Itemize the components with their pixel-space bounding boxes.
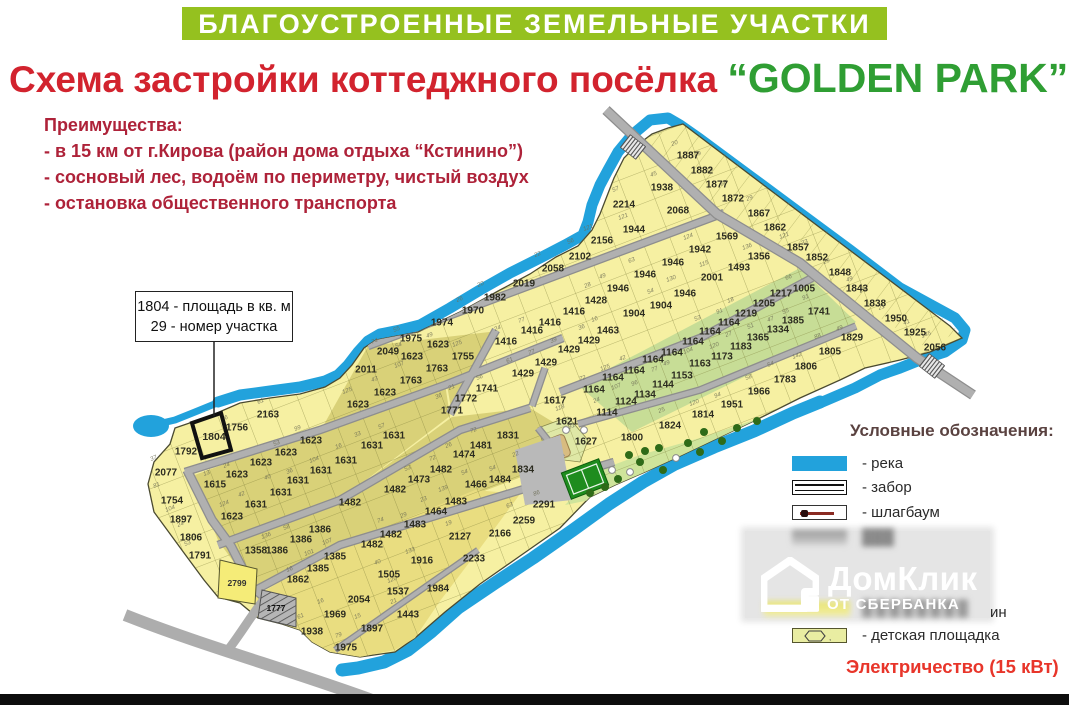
svg-text:1946: 1946 (662, 258, 685, 269)
svg-text:2166: 2166 (489, 529, 512, 540)
svg-text:1631: 1631 (287, 476, 310, 487)
svg-text:1416: 1416 (563, 307, 586, 318)
svg-text:1772: 1772 (455, 394, 478, 405)
svg-text:1834: 1834 (512, 465, 535, 476)
svg-text:1897: 1897 (170, 515, 193, 526)
svg-text:2019: 2019 (513, 279, 536, 290)
svg-text:1482: 1482 (384, 485, 407, 496)
svg-text:1164: 1164 (583, 385, 605, 396)
svg-text:1164: 1164 (623, 366, 645, 377)
svg-text:1173: 1173 (711, 352, 733, 363)
svg-text:1164: 1164 (661, 348, 683, 359)
svg-text:1623: 1623 (347, 400, 370, 411)
svg-text:1463: 1463 (597, 326, 620, 337)
svg-text:2054: 2054 (348, 595, 371, 606)
svg-text:1897: 1897 (361, 624, 384, 635)
svg-text:,: , (829, 633, 831, 642)
svg-text:1484: 1484 (489, 475, 512, 486)
svg-text:2156: 2156 (591, 236, 614, 247)
svg-text:1838: 1838 (864, 299, 887, 310)
svg-text:1984: 1984 (427, 584, 450, 595)
svg-text:1944: 1944 (623, 225, 646, 236)
svg-text:1916: 1916 (411, 556, 434, 567)
svg-text:1783: 1783 (774, 375, 797, 386)
svg-text:1852: 1852 (806, 253, 829, 264)
svg-text:1829: 1829 (841, 333, 864, 344)
svg-text:1621: 1621 (556, 417, 579, 428)
svg-text:1623: 1623 (401, 352, 424, 363)
svg-text:1950: 1950 (885, 314, 908, 325)
svg-text:1124: 1124 (615, 397, 637, 408)
svg-text:1877: 1877 (706, 180, 729, 191)
svg-text:1741: 1741 (808, 307, 831, 318)
svg-text:1163: 1163 (689, 359, 711, 370)
svg-text:1627: 1627 (575, 437, 598, 448)
svg-text:1164: 1164 (602, 373, 624, 384)
svg-text:1537: 1537 (387, 587, 410, 598)
svg-text:1631: 1631 (335, 456, 358, 467)
svg-text:1623: 1623 (427, 340, 450, 351)
svg-text:1631: 1631 (245, 500, 268, 511)
svg-text:1755: 1755 (452, 352, 475, 363)
svg-text:1777: 1777 (267, 603, 286, 613)
svg-text:1429: 1429 (578, 336, 601, 347)
svg-text:1763: 1763 (400, 376, 423, 387)
svg-text:1482: 1482 (361, 540, 384, 551)
svg-text:2068: 2068 (667, 206, 690, 217)
svg-text:1975: 1975 (335, 643, 358, 654)
svg-text:1385: 1385 (307, 564, 330, 575)
svg-text:1631: 1631 (383, 431, 406, 442)
svg-text:1806: 1806 (795, 362, 818, 373)
svg-text:1925: 1925 (904, 328, 927, 339)
svg-text:1493: 1493 (728, 263, 751, 274)
svg-text:1951: 1951 (721, 400, 744, 411)
svg-text:2799: 2799 (228, 578, 247, 588)
svg-text:1005: 1005 (793, 284, 816, 295)
svg-text:2049: 2049 (377, 347, 400, 358)
svg-text:1763: 1763 (426, 364, 449, 375)
svg-text:1631: 1631 (361, 441, 384, 452)
svg-text:1358: 1358 (245, 546, 268, 557)
svg-text:1334: 1334 (767, 325, 790, 336)
svg-text:1970: 1970 (462, 306, 485, 317)
svg-text:1569: 1569 (716, 232, 739, 243)
svg-text:1617: 1617 (544, 396, 567, 407)
svg-text:1483: 1483 (404, 520, 427, 531)
svg-text:1386: 1386 (309, 525, 332, 536)
svg-text:1164: 1164 (642, 355, 664, 366)
svg-text:1741: 1741 (476, 384, 499, 395)
svg-text:1814: 1814 (692, 410, 715, 421)
svg-text:1946: 1946 (634, 270, 657, 281)
svg-text:1464: 1464 (425, 507, 448, 518)
svg-text:1904: 1904 (623, 309, 646, 320)
svg-text:2001: 2001 (701, 273, 724, 284)
svg-text:1966: 1966 (748, 387, 771, 398)
svg-text:1623: 1623 (275, 448, 298, 459)
svg-text:2056: 2056 (924, 343, 947, 354)
svg-text:1134: 1134 (634, 390, 656, 401)
svg-text:2291: 2291 (533, 500, 556, 511)
svg-text:1482: 1482 (339, 498, 362, 509)
svg-text:2011: 2011 (355, 365, 377, 376)
svg-text:1982: 1982 (484, 293, 507, 304)
svg-text:2163: 2163 (257, 410, 280, 421)
svg-text:1623: 1623 (250, 458, 273, 469)
svg-text:1428: 1428 (585, 296, 608, 307)
svg-text:1386: 1386 (290, 535, 313, 546)
svg-text:1848: 1848 (829, 268, 852, 279)
svg-text:1466: 1466 (465, 480, 488, 491)
svg-text:1938: 1938 (651, 183, 674, 194)
svg-text:1975: 1975 (400, 334, 423, 345)
svg-text:1867: 1867 (748, 209, 771, 220)
svg-text:2233: 2233 (463, 554, 486, 565)
svg-text:1887: 1887 (677, 151, 700, 162)
svg-text:1615: 1615 (204, 480, 227, 491)
svg-text:2058: 2058 (542, 264, 565, 275)
svg-text:1792: 1792 (175, 447, 198, 458)
svg-text:1804: 1804 (202, 431, 226, 443)
svg-text:1756: 1756 (226, 423, 249, 434)
svg-text:1183: 1183 (730, 342, 752, 353)
svg-text:1862: 1862 (764, 223, 787, 234)
svg-text:1824: 1824 (659, 421, 682, 432)
svg-text:1938: 1938 (301, 627, 324, 638)
svg-text:1429: 1429 (535, 358, 558, 369)
svg-text:1974: 1974 (431, 318, 454, 329)
svg-text:2077: 2077 (155, 468, 178, 479)
svg-text:1416: 1416 (521, 326, 544, 337)
svg-text:1805: 1805 (819, 347, 842, 358)
svg-text:1946: 1946 (674, 289, 697, 300)
svg-text:1429: 1429 (512, 369, 535, 380)
svg-text:1623: 1623 (226, 470, 249, 481)
svg-text:1800: 1800 (621, 433, 644, 444)
svg-text:1791: 1791 (189, 551, 212, 562)
svg-text:1969: 1969 (324, 610, 347, 621)
svg-text:1416: 1416 (495, 337, 518, 348)
svg-text:1164: 1164 (718, 318, 740, 329)
svg-text:1623: 1623 (221, 512, 244, 523)
svg-text:1872: 1872 (722, 194, 745, 205)
svg-text:1631: 1631 (270, 488, 293, 499)
svg-text:1882: 1882 (691, 166, 714, 177)
svg-text:1386: 1386 (266, 546, 289, 557)
svg-text:1356: 1356 (748, 252, 771, 263)
svg-text:1623: 1623 (374, 388, 397, 399)
svg-text:1482: 1482 (380, 530, 403, 541)
svg-text:1754: 1754 (161, 496, 184, 507)
svg-text:1482: 1482 (430, 465, 453, 476)
svg-text:1831: 1831 (497, 431, 520, 442)
svg-text:1114: 1114 (596, 408, 618, 419)
svg-text:1505: 1505 (378, 570, 401, 581)
svg-text:1385: 1385 (324, 552, 347, 563)
svg-text:1862: 1862 (287, 575, 310, 586)
svg-text:1904: 1904 (650, 301, 673, 312)
svg-text:1164: 1164 (682, 337, 704, 348)
svg-text:1771: 1771 (441, 406, 464, 417)
svg-text:1806: 1806 (180, 533, 203, 544)
svg-text:1153: 1153 (671, 371, 693, 382)
svg-text:1429: 1429 (558, 345, 581, 356)
svg-text:2102: 2102 (569, 252, 592, 263)
svg-text:1483: 1483 (445, 497, 468, 508)
svg-text:1942: 1942 (689, 245, 712, 256)
svg-text:1946: 1946 (607, 284, 630, 295)
svg-text:2214: 2214 (613, 200, 636, 211)
svg-text:2259: 2259 (513, 516, 536, 527)
svg-text:1473: 1473 (408, 475, 431, 486)
svg-text:1474: 1474 (453, 450, 476, 461)
svg-text:1631: 1631 (310, 466, 333, 477)
svg-text:2127: 2127 (449, 532, 472, 543)
svg-text:1443: 1443 (397, 610, 420, 621)
svg-text:1623: 1623 (300, 436, 323, 447)
svg-text:1843: 1843 (846, 284, 869, 295)
